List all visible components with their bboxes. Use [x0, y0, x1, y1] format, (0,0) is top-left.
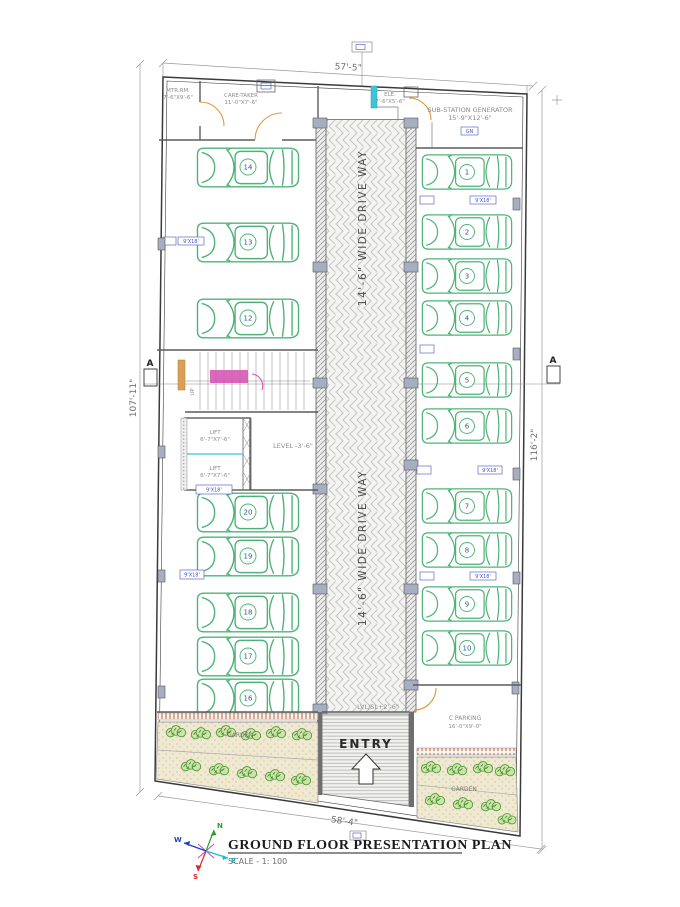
stair-side-strip	[178, 360, 185, 390]
svg-text:9'X18': 9'X18'	[184, 573, 200, 579]
dim-bottom-label: 58'-4"	[330, 815, 358, 829]
cparking-size: 16'-0"X9'-0"	[448, 724, 481, 730]
caretaker-room-size: 11'-0"X7'-6"	[224, 100, 257, 106]
dim-right-label: 116'-2"	[530, 429, 540, 462]
garden-left: GARDEN	[156, 713, 318, 803]
generator-tag-label: GN	[466, 129, 474, 135]
compass-n: N	[217, 822, 223, 830]
car-number: 4	[465, 315, 470, 323]
caretaker-room-name: CARE-TAKER	[224, 93, 258, 99]
drawing-scale: SCALE - 1: 100	[228, 857, 287, 866]
title-block: GROUND FLOOR PRESENTATION PLAN SCALE - 1…	[228, 838, 512, 866]
substation-room-name: SUB-STATION GENERATOR	[427, 106, 513, 114]
car-number: 9	[465, 601, 469, 609]
lift1-size: 6'-7"X7'-6"	[200, 437, 230, 443]
car-number: 14	[244, 164, 253, 172]
car-number: 5	[465, 377, 469, 385]
svg-text:9'X18': 9'X18'	[482, 468, 498, 474]
car-number: 12	[244, 315, 253, 323]
meter-room-size: 7'-6"X9'-6"	[163, 95, 193, 101]
door-arc-caretaker	[255, 113, 282, 140]
ele-room-size: 7'-6"X5'-6"	[375, 99, 405, 105]
driveway-wall-left	[316, 120, 326, 712]
car-number: 6	[465, 423, 470, 431]
lift2-size: 6'-7"X7'-6"	[200, 473, 230, 479]
parking-right-column: 1 2 3 4 5 6 7 8 9 10	[422, 155, 511, 665]
ramp-wall-right	[409, 712, 414, 807]
drawing-title: GROUND FLOOR PRESENTATION PLAN	[228, 838, 512, 853]
ele-room-name: ELE.	[384, 92, 396, 98]
level-label: LEVEL -3'-6"	[273, 442, 313, 450]
parking-left-top: 14 13 12	[197, 148, 298, 338]
floor-plan-page: 57'-5" 58'-4" 107'-11" 116'-2" A A	[0, 0, 680, 907]
driveway-label-bottom: 14'-6" WIDE DRIVE WAY	[357, 470, 369, 626]
driveway-label-top: 14'-6" WIDE DRIVE WAY	[357, 150, 369, 306]
ramp-level-label: LVL/SL+2'-6"	[357, 703, 399, 711]
car-number: 1	[465, 169, 469, 177]
dim-leader-box	[352, 42, 372, 52]
door-arc-cparking	[414, 688, 436, 710]
compass-s: S	[193, 873, 198, 881]
svg-text:9'X18': 9'X18'	[475, 198, 491, 204]
garden-label-right: GARDEN	[451, 786, 477, 793]
car-number: 17	[244, 653, 253, 661]
floor-plan-drawing: 57'-5" 58'-4" 107'-11" 116'-2" A A	[0, 0, 680, 907]
stair-up-label: UP	[190, 388, 196, 396]
driveway: 14'-6" WIDE DRIVE WAY 14'-6" WIDE DRIVE …	[313, 118, 418, 714]
car-number: 20	[244, 509, 253, 517]
lift1-name: LIFT	[209, 430, 221, 436]
car-number: 8	[465, 547, 469, 555]
c-parking-area: C PARKING 16'-0"X9'-0"	[413, 685, 521, 730]
cparking-name: C PARKING	[449, 715, 482, 722]
svg-text:9'X18': 9'X18'	[206, 488, 222, 494]
garden-label-left: GARDEN	[227, 732, 253, 739]
entry-ramp: LVL/SL+2'-6" ENTRY	[317, 703, 414, 807]
lift2-name: LIFT	[209, 466, 221, 472]
svg-text:9'X18': 9'X18'	[183, 239, 199, 245]
parking-left-bottom: 20 19 18 17 16	[197, 493, 298, 718]
meter-room-name: MTR.RM.	[166, 88, 190, 94]
dimension-left: 107'-11"	[129, 60, 144, 796]
car-number: 13	[244, 239, 253, 247]
section-marker-right: A	[550, 356, 557, 366]
car-number: 19	[244, 553, 253, 561]
car-number: 7	[465, 503, 469, 511]
driveway-wall-right	[406, 120, 416, 712]
svg-text:9'X18': 9'X18'	[475, 574, 491, 580]
entry-label: ENTRY	[339, 737, 393, 751]
section-marker-left: A	[147, 359, 154, 369]
door-arc-meter	[200, 102, 224, 126]
staircase: UP	[157, 350, 318, 412]
dimension-right: 116'-2"	[530, 86, 562, 854]
car-number: 10	[463, 645, 472, 653]
garden-right: GARDEN	[417, 748, 518, 832]
lift-shafts: LIFT 6'-7"X7'-6" LIFT 6'-7"X7'-6" LEVEL …	[181, 418, 318, 490]
substation-room-size: 15'-9"X12'-6"	[448, 114, 492, 122]
car-number: 18	[244, 609, 253, 617]
car-number: 3	[465, 273, 469, 281]
dim-top-label: 57'-5"	[334, 62, 362, 74]
stair-flight-highlight	[210, 370, 248, 383]
compass-w: W	[174, 836, 182, 844]
car-number: 16	[244, 695, 253, 703]
compass-rose: N S W E	[174, 822, 236, 881]
dim-left-label: 107'-11"	[129, 379, 139, 418]
car-number: 2	[465, 229, 469, 237]
